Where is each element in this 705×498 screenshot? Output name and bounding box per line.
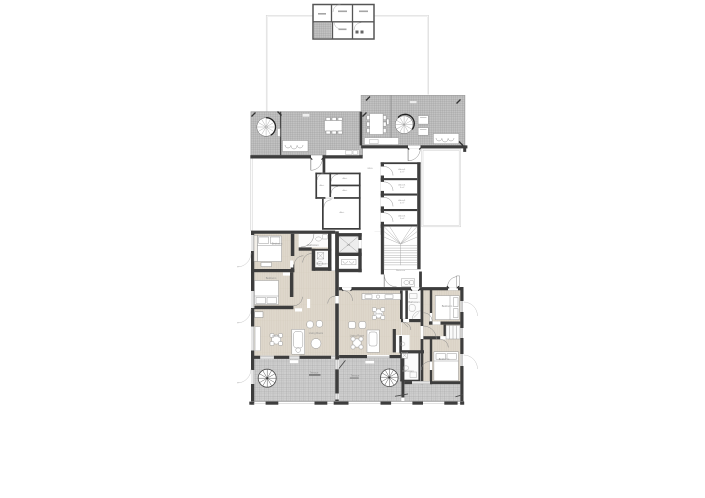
svg-text:Terrace: Terrace [310,371,319,375]
svg-text:Bathroom: Bathroom [402,369,413,373]
svg-text:Abst.: Abst. [343,177,348,180]
svg-text:Bedroom: Bedroom [442,304,453,308]
svg-text:Lift: Lift [347,243,351,247]
svg-text:WEG: WEG [367,168,373,170]
svg-text:Abstell.: Abstell. [398,214,406,217]
svg-text:Staircase: Staircase [396,269,406,272]
svg-text:Bathroom: Bathroom [316,262,327,266]
svg-text:3 m²: 3 m² [400,186,405,189]
svg-text:3 m²: 3 m² [400,202,405,205]
svg-text:3 m²: 3 m² [400,217,405,220]
svg-text:Terrace: Terrace [351,374,360,378]
svg-text:Abst.: Abst. [340,211,345,214]
svg-text:Bedroom: Bedroom [266,276,277,280]
svg-text:Abstell.: Abstell. [398,184,406,187]
svg-text:Abstell.: Abstell. [398,199,406,202]
svg-text:Bedroom: Bedroom [272,242,283,246]
svg-text:Bedroom: Bedroom [439,357,450,361]
svg-text:Abst.: Abst. [320,184,325,187]
svg-text:Living Room: Living Room [309,331,323,335]
svg-text:Living Room: Living Room [350,334,364,338]
svg-text:Abst.: Abst. [343,189,348,192]
svg-text:Dining: Dining [375,312,383,316]
svg-text:Dining: Dining [272,334,280,338]
svg-text:Abstell.: Abstell. [398,168,406,171]
svg-text:Bathroom: Bathroom [307,243,318,247]
svg-text:Bathroom: Bathroom [408,300,419,304]
svg-text:3 m²: 3 m² [400,171,405,174]
